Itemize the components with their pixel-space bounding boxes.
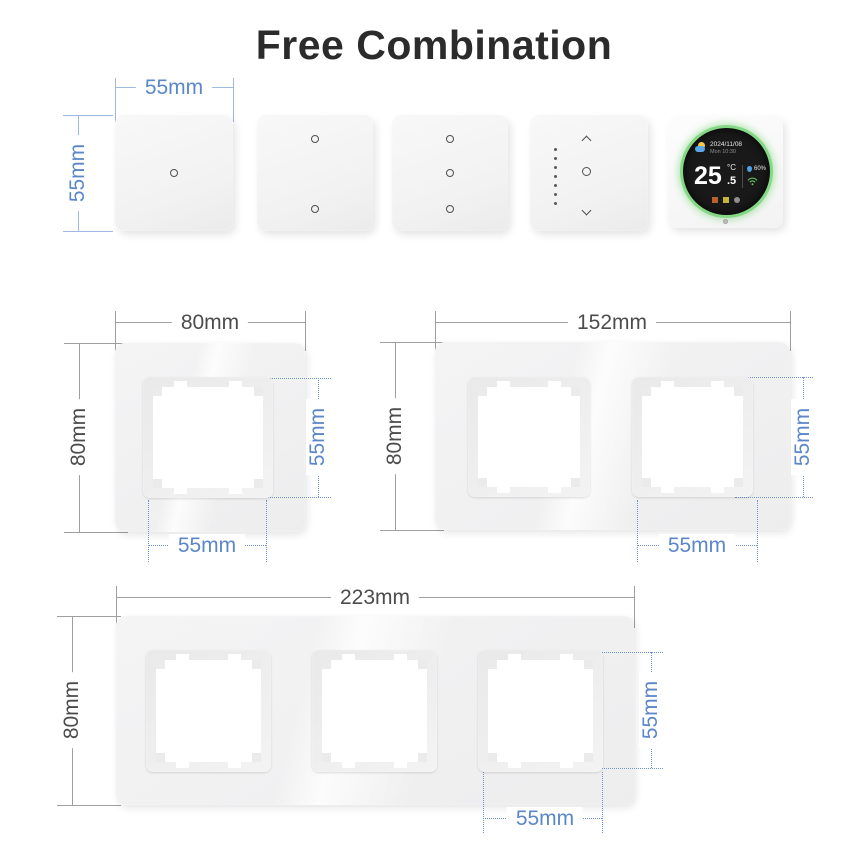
thermostat-temperature-decimal: .5	[727, 175, 736, 187]
thermostat-date: 2024/11/08	[710, 141, 742, 148]
heating-mode-icon	[712, 197, 718, 203]
dimmer-level-dot-icon	[554, 202, 557, 205]
opening-tab	[228, 761, 241, 768]
opening-tab	[394, 761, 407, 768]
touch-button-icon	[446, 205, 454, 213]
module-width-dim-tick-right	[233, 78, 234, 122]
dimmer-level-dot-icon	[554, 193, 557, 196]
frame-opening	[468, 377, 590, 497]
module-1gang-switch	[115, 115, 233, 231]
opening-corner-step	[642, 478, 651, 487]
opening-tab	[711, 381, 724, 388]
opening-corner-step	[642, 387, 651, 396]
single-opening-width-label: 55mm	[169, 534, 245, 558]
opening-inner	[153, 387, 263, 488]
opening-dim-guide	[735, 497, 813, 498]
opening-corner-step	[488, 753, 497, 762]
frame-opening	[632, 377, 753, 497]
opening-inner	[322, 660, 427, 762]
opening-corner-step	[584, 660, 593, 669]
opening-corner-step	[584, 753, 593, 762]
touch-button-icon	[311, 205, 319, 213]
module-height-dim-tick-bottom	[63, 231, 113, 232]
opening-corner-step	[571, 478, 580, 487]
opening-corner-step	[418, 660, 427, 669]
opening-inner	[156, 660, 261, 762]
opening-corner-step	[153, 479, 162, 488]
opening-corner-step	[156, 753, 165, 762]
module-thermostat: 2024/11/08 Mon 10:30 25 °C .5 60%	[668, 116, 783, 228]
opening-corner-step	[571, 387, 580, 396]
triple-frame	[116, 616, 634, 805]
chevron-up-icon	[582, 136, 592, 146]
module-height-label: 55mm	[66, 135, 90, 211]
double-opening-width-label: 55mm	[659, 534, 735, 558]
humidity-value: 60%	[754, 166, 766, 173]
triple-opening-width-label: 55mm	[507, 807, 583, 831]
dimmer-level-dot-icon	[554, 148, 557, 151]
module-height-dim-tick-top	[63, 115, 113, 116]
opening-dim-guide	[637, 500, 638, 562]
double-opening-height-label: 55mm	[791, 399, 815, 475]
dim-tick	[115, 311, 116, 351]
frame-opening	[146, 650, 271, 772]
touch-button-icon	[446, 169, 454, 177]
dimmer-level-dot-icon	[554, 175, 557, 178]
dim-tick	[380, 530, 444, 531]
opening-dim-guide	[266, 500, 267, 562]
double-frame-height-label: 80mm	[383, 398, 407, 474]
opening-tab	[661, 381, 674, 388]
dim-tick	[634, 586, 635, 628]
touch-button-icon	[311, 135, 319, 143]
opening-tab	[560, 654, 573, 661]
opening-tab	[176, 761, 189, 768]
thermostat-temperature: 25	[694, 164, 722, 189]
dim-tick	[380, 342, 444, 343]
module-dimmer-switch	[530, 115, 648, 231]
opening-tab	[229, 381, 242, 388]
opening-tab	[711, 486, 724, 493]
opening-tab	[508, 761, 521, 768]
schedule-mode-icon	[723, 197, 729, 203]
thermostat-display: 2024/11/08 Mon 10:30 25 °C .5 60%	[680, 125, 773, 218]
opening-dim-guide	[602, 772, 603, 833]
thermostat-temperature-unit: °C	[727, 164, 736, 173]
opening-corner-step	[488, 660, 497, 669]
double-frame	[435, 342, 790, 530]
opening-tab	[229, 487, 242, 494]
opening-corner-step	[734, 387, 743, 396]
opening-inner	[478, 387, 580, 487]
opening-tab	[548, 381, 561, 388]
module-width-label: 55mm	[136, 76, 212, 100]
opening-tab	[176, 654, 189, 661]
frame-opening	[478, 650, 603, 772]
opening-tab	[174, 381, 187, 388]
opening-inner	[488, 660, 593, 762]
thermostat-button	[723, 219, 728, 224]
wifi-icon	[747, 177, 758, 186]
dim-tick	[57, 616, 121, 617]
opening-corner-step	[734, 478, 743, 487]
dim-tick	[64, 532, 128, 533]
triple-frame-width-label: 223mm	[331, 586, 419, 610]
opening-corner-step	[254, 387, 263, 396]
page-title: Free Combination	[256, 22, 613, 69]
opening-corner-step	[153, 387, 162, 396]
info-icon	[734, 197, 740, 203]
opening-tab	[228, 654, 241, 661]
opening-corner-step	[322, 753, 331, 762]
single-frame-width-label: 80mm	[172, 311, 248, 335]
product-dimension-diagram: Free Combination 55mm 55mm 2024/1	[0, 0, 868, 868]
frame-opening	[143, 377, 273, 498]
module-3gang-switch	[392, 115, 508, 231]
opening-tab	[174, 487, 187, 494]
frame-opening	[312, 650, 437, 772]
opening-corner-step	[252, 660, 261, 669]
single-frame-height-label: 80mm	[67, 399, 91, 475]
module-width-dim-tick-left	[115, 78, 116, 122]
triple-opening-height-label: 55mm	[639, 672, 663, 748]
opening-inner	[642, 387, 743, 487]
module-2gang-switch	[257, 115, 373, 231]
dim-tick	[435, 311, 436, 351]
dimmer-level-dot-icon	[554, 166, 557, 169]
humidity-drop-icon	[747, 166, 752, 172]
opening-corner-step	[322, 660, 331, 669]
opening-tab	[342, 654, 355, 661]
opening-tab	[661, 486, 674, 493]
opening-tab	[497, 486, 510, 493]
dimmer-level-dot-icon	[554, 184, 557, 187]
opening-tab	[548, 486, 561, 493]
touch-button-icon	[582, 167, 591, 176]
opening-tab	[342, 761, 355, 768]
dimmer-level-dot-icon	[554, 157, 557, 160]
opening-tab	[497, 381, 510, 388]
opening-corner-step	[478, 387, 487, 396]
dim-tick	[790, 311, 791, 351]
opening-dim-guide	[148, 500, 149, 562]
single-opening-height-label: 55mm	[306, 399, 330, 475]
opening-dim-guide	[757, 500, 758, 562]
touch-button-icon	[170, 169, 178, 177]
double-frame-width-label: 152mm	[568, 311, 656, 335]
opening-tab	[394, 654, 407, 661]
opening-tab	[560, 761, 573, 768]
opening-dim-guide	[483, 772, 484, 833]
cloud-icon	[695, 146, 705, 152]
thermostat-day-time: Mon 10:30	[710, 149, 736, 155]
display-divider	[742, 165, 743, 188]
opening-corner-step	[156, 660, 165, 669]
opening-corner-step	[418, 753, 427, 762]
opening-corner-step	[254, 479, 263, 488]
opening-corner-step	[478, 478, 487, 487]
dim-tick	[305, 311, 306, 351]
triple-frame-height-label: 80mm	[60, 672, 84, 748]
single-frame	[115, 343, 305, 532]
chevron-down-icon	[582, 206, 592, 216]
dim-tick	[57, 805, 121, 806]
opening-tab	[508, 654, 521, 661]
touch-button-icon	[446, 135, 454, 143]
opening-corner-step	[252, 753, 261, 762]
